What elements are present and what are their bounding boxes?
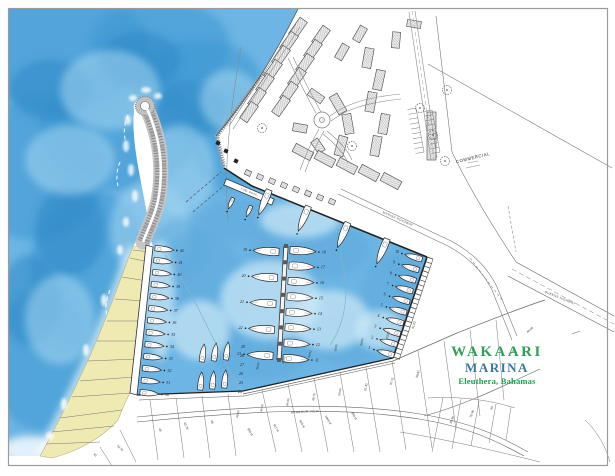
slip-number: 2 <box>371 334 373 339</box>
quayside-unit <box>256 174 264 181</box>
quay-hatch-tick <box>412 302 418 304</box>
quay-hatch-tick <box>401 334 407 336</box>
lot-dimension-label: 50.00 <box>337 388 342 396</box>
slip-number: 40 <box>177 272 181 277</box>
parking-stall-tick <box>412 132 421 134</box>
lot-line <box>202 396 210 458</box>
slip-number: 22 <box>239 325 243 330</box>
building <box>272 95 291 117</box>
lot-line <box>506 407 511 440</box>
piling-dot <box>312 344 314 346</box>
building <box>353 25 368 43</box>
building <box>314 150 336 167</box>
parking-stall-tick <box>416 152 425 154</box>
foam <box>129 95 137 101</box>
tree-icon <box>446 89 448 91</box>
piling-dot <box>336 249 338 251</box>
slip-number: 38 <box>175 296 179 301</box>
piling-dot <box>311 359 313 361</box>
lot-dimension-label: 52.76 <box>116 444 124 452</box>
piling-dot <box>314 313 316 315</box>
quay-hatch-tick <box>399 339 405 341</box>
piling-dot <box>296 233 298 235</box>
slip-number: 29 <box>241 344 245 349</box>
building <box>342 113 354 134</box>
piling-dot <box>317 267 319 269</box>
foam <box>123 140 129 152</box>
lot-line <box>150 400 158 460</box>
piling-dot <box>313 328 315 330</box>
parking-stall-tick <box>413 137 422 139</box>
lot-dimension-label: 58.87 <box>415 369 421 378</box>
building <box>370 135 382 156</box>
quayside-unit <box>316 194 324 201</box>
pier-pad <box>283 260 287 264</box>
lot-dimension-label: 45.00 <box>235 410 240 418</box>
quay-hatch-tick <box>410 307 416 309</box>
quay-hatch-tick <box>406 321 412 323</box>
pencil-mark <box>572 331 580 334</box>
lot-line <box>366 367 380 452</box>
lot-dimension-label: 52.76 <box>183 422 190 431</box>
slip-number: 15 <box>319 296 323 301</box>
building <box>373 69 386 90</box>
road-branch <box>424 369 540 416</box>
piling-dot <box>315 297 317 299</box>
slip-number: 28 <box>240 353 244 358</box>
quay-hatch-tick <box>424 266 430 268</box>
parking-stall-tick <box>411 128 420 130</box>
piling-dot <box>245 327 247 329</box>
slip-number: 6 <box>384 292 386 297</box>
foam <box>83 344 89 356</box>
piling-dot <box>171 298 173 300</box>
lot-dimension-label: 44.05 <box>526 326 535 334</box>
pier-pad <box>280 309 284 313</box>
lot-line <box>288 384 302 452</box>
slip-number: 18 <box>322 249 326 254</box>
commercial-sub-note <box>466 161 480 168</box>
slip-number: 32 <box>167 368 171 373</box>
quay-hatch-tick <box>415 293 421 295</box>
parcel-boundary <box>428 64 612 168</box>
highway-edge <box>508 276 614 332</box>
quayside-unit <box>268 178 276 185</box>
slip-number: 25 <box>239 380 243 385</box>
building <box>406 19 421 28</box>
slip-number: 41 <box>179 260 183 265</box>
piling-dot <box>246 301 248 303</box>
piling-dot <box>395 274 397 276</box>
piling-dot <box>257 217 259 219</box>
piling-dot <box>244 219 246 221</box>
piling-dot <box>226 211 228 213</box>
foam <box>117 245 123 255</box>
piling-dot <box>248 275 250 277</box>
building <box>380 172 402 189</box>
piling-dot <box>176 250 178 252</box>
parking-stall-tick <box>409 118 418 120</box>
piling-dot <box>398 263 400 265</box>
lot-dimension-label: 45 <box>158 428 163 433</box>
piling-dot <box>376 338 378 340</box>
road-line <box>415 11 437 158</box>
slip-number: 3 <box>374 324 376 329</box>
slip-number: 11 <box>315 357 319 362</box>
slip-number: 5 <box>381 302 383 307</box>
piling-dot <box>165 358 167 360</box>
south-road <box>137 411 524 456</box>
pier-pad <box>279 325 283 329</box>
slip-number: 12 <box>316 342 320 347</box>
quayside-unit <box>328 198 336 205</box>
piling-dot <box>382 317 384 319</box>
lot-line <box>100 447 112 466</box>
slip-number: 20 <box>242 273 246 278</box>
foam <box>128 164 134 176</box>
quay-hatch-tick <box>419 280 425 282</box>
parking-row <box>416 108 424 152</box>
site-plan-drawing: FUEL DOCK4241403938373635343332313019202… <box>0 0 615 476</box>
quay-hatch-tick <box>409 312 415 314</box>
slip-number: 33 <box>169 356 173 361</box>
quayside-unit <box>292 186 300 193</box>
lot-dimension-label: 70.36 <box>469 409 475 418</box>
quayside-unit <box>280 182 288 189</box>
slip-number: 13 <box>317 326 321 331</box>
piling-dot <box>375 266 377 268</box>
commercial-label: COMMERCIAL <box>455 151 490 164</box>
road-curve <box>400 420 610 462</box>
foam <box>154 93 162 99</box>
piling-dot <box>169 322 171 324</box>
quayside-unit <box>244 169 252 176</box>
lot-dimension-label: 49.75 <box>311 393 316 401</box>
building <box>362 47 374 68</box>
slip-number: 1 <box>368 345 370 350</box>
parking-stall-tick <box>415 147 424 149</box>
lot-line <box>392 361 406 450</box>
highway-edge <box>516 262 614 316</box>
slip-number: 16 <box>320 280 324 285</box>
quay-hatch-tick <box>416 289 422 291</box>
slip-number: 4 <box>377 313 379 318</box>
piling-dot <box>316 282 318 284</box>
piling-dot <box>174 274 176 276</box>
quay-hatch-tick <box>403 330 409 332</box>
quay-hatch-tick <box>425 262 431 264</box>
piling-dot <box>318 251 320 253</box>
pier-pad <box>277 358 281 362</box>
pier-pad <box>282 277 286 281</box>
quayside-unit <box>304 190 312 197</box>
piling-dot <box>373 349 375 351</box>
slip-number: 36 <box>172 320 176 325</box>
piling-dot <box>162 382 164 384</box>
building <box>335 43 350 61</box>
road-label: HARBOUR VIEW <box>291 409 319 414</box>
quay-hatch-tick <box>398 343 404 345</box>
tree-icon <box>351 145 353 147</box>
lot-dimension-label: 50 <box>489 405 494 410</box>
slip-number: 31 <box>166 380 170 385</box>
foam <box>61 398 67 410</box>
lot-line <box>262 390 276 452</box>
piling-dot <box>392 285 394 287</box>
lot-dimension-label: 45 <box>93 452 98 457</box>
slip-number: 9 <box>393 260 395 265</box>
pier-pad <box>278 342 282 346</box>
lot-dimension-label: 999 sf <box>246 427 254 436</box>
lot-line <box>418 351 432 448</box>
slip-number: 10 <box>395 249 399 254</box>
piling-dot <box>166 346 168 348</box>
foam <box>46 432 54 440</box>
piling-dot <box>386 306 388 308</box>
tree-icon <box>261 127 263 129</box>
quay-hatch-tick <box>413 298 419 300</box>
slip-number: 26 <box>239 371 243 376</box>
building <box>329 93 347 115</box>
foam <box>125 115 131 125</box>
quay-hatch-tick <box>422 271 428 273</box>
pier-pad <box>284 244 288 248</box>
lot-dimension-label: 917 sf <box>272 423 280 432</box>
lot-dimension-label: 57.21 <box>389 376 395 385</box>
quay-hatch-tick <box>395 352 401 354</box>
lot-dimension-label: 64.05 <box>508 348 517 356</box>
parking-stall-tick <box>414 142 423 144</box>
lot-line <box>496 320 504 400</box>
road-label: MARINA ROADWAY <box>382 210 414 227</box>
plan-sheet: FUEL DOCK4241403938373635343332313019202… <box>0 0 615 476</box>
pier-pad <box>281 293 285 297</box>
piling-dot <box>379 327 381 329</box>
lot-dimension-label: 910 sf <box>298 419 306 428</box>
quay-hatch-tick <box>396 348 402 350</box>
quay-hatch-tick <box>421 275 427 277</box>
piling-dot <box>164 370 166 372</box>
building <box>292 123 307 133</box>
parking-stall-tick <box>408 113 417 115</box>
quay-hatch-tick <box>404 325 410 327</box>
water-blob <box>170 300 230 360</box>
quay-hatch-tick <box>418 284 424 286</box>
building <box>358 164 380 181</box>
parking-stall-tick <box>424 110 433 112</box>
parcel-boundary <box>436 16 516 262</box>
building <box>365 91 377 112</box>
slip-number: 34 <box>170 344 174 349</box>
lot-dimension-label: 1040 sf <box>324 415 332 426</box>
slip-number: 39 <box>176 284 180 289</box>
piling-dot <box>161 394 163 396</box>
water-blob <box>25 125 115 195</box>
tree-icon <box>432 134 434 136</box>
piling-dot <box>172 286 174 288</box>
roundabout-island <box>319 117 324 122</box>
parking-stall-tick <box>410 123 419 125</box>
plaza-planter <box>233 158 238 163</box>
piling-dot <box>175 262 177 264</box>
piling-dot <box>170 310 172 312</box>
quay-hatch-tick <box>427 257 433 259</box>
piling-dot <box>401 253 403 255</box>
building <box>391 32 400 49</box>
foam <box>123 217 129 227</box>
building <box>378 113 390 134</box>
parking-stall-tick <box>408 108 417 110</box>
lot-dimension-label: 48 <box>210 420 215 425</box>
piling-dot <box>167 334 169 336</box>
slip-number: 42 <box>180 248 184 253</box>
lot-line <box>176 398 184 458</box>
tree-icon <box>419 107 421 109</box>
slip-number: 21 <box>240 299 244 304</box>
tree-icon <box>444 160 446 162</box>
piling-dot <box>249 249 251 251</box>
road-centerline <box>412 11 434 159</box>
slip-number: 19 <box>243 247 247 252</box>
parcel-dashed-line <box>470 206 516 300</box>
slip-number: 24 <box>238 389 242 394</box>
foam <box>132 190 138 202</box>
lot-line <box>432 398 443 452</box>
lot-line <box>228 394 236 456</box>
lot-line <box>471 401 479 446</box>
foam <box>141 87 151 93</box>
lot-dimension-label: 44.05 <box>259 404 264 412</box>
slip-number: 35 <box>171 332 175 337</box>
slip-number: 14 <box>318 311 322 316</box>
slip-number: 30 <box>165 392 169 397</box>
building <box>336 157 358 174</box>
lot-dimension-label: 64.05 <box>285 398 290 406</box>
lot-dimension-label: 51.42 <box>363 383 369 391</box>
quay-hatch-tick <box>407 316 413 318</box>
slip-number: 8 <box>390 270 392 275</box>
piling-dot <box>389 295 391 297</box>
